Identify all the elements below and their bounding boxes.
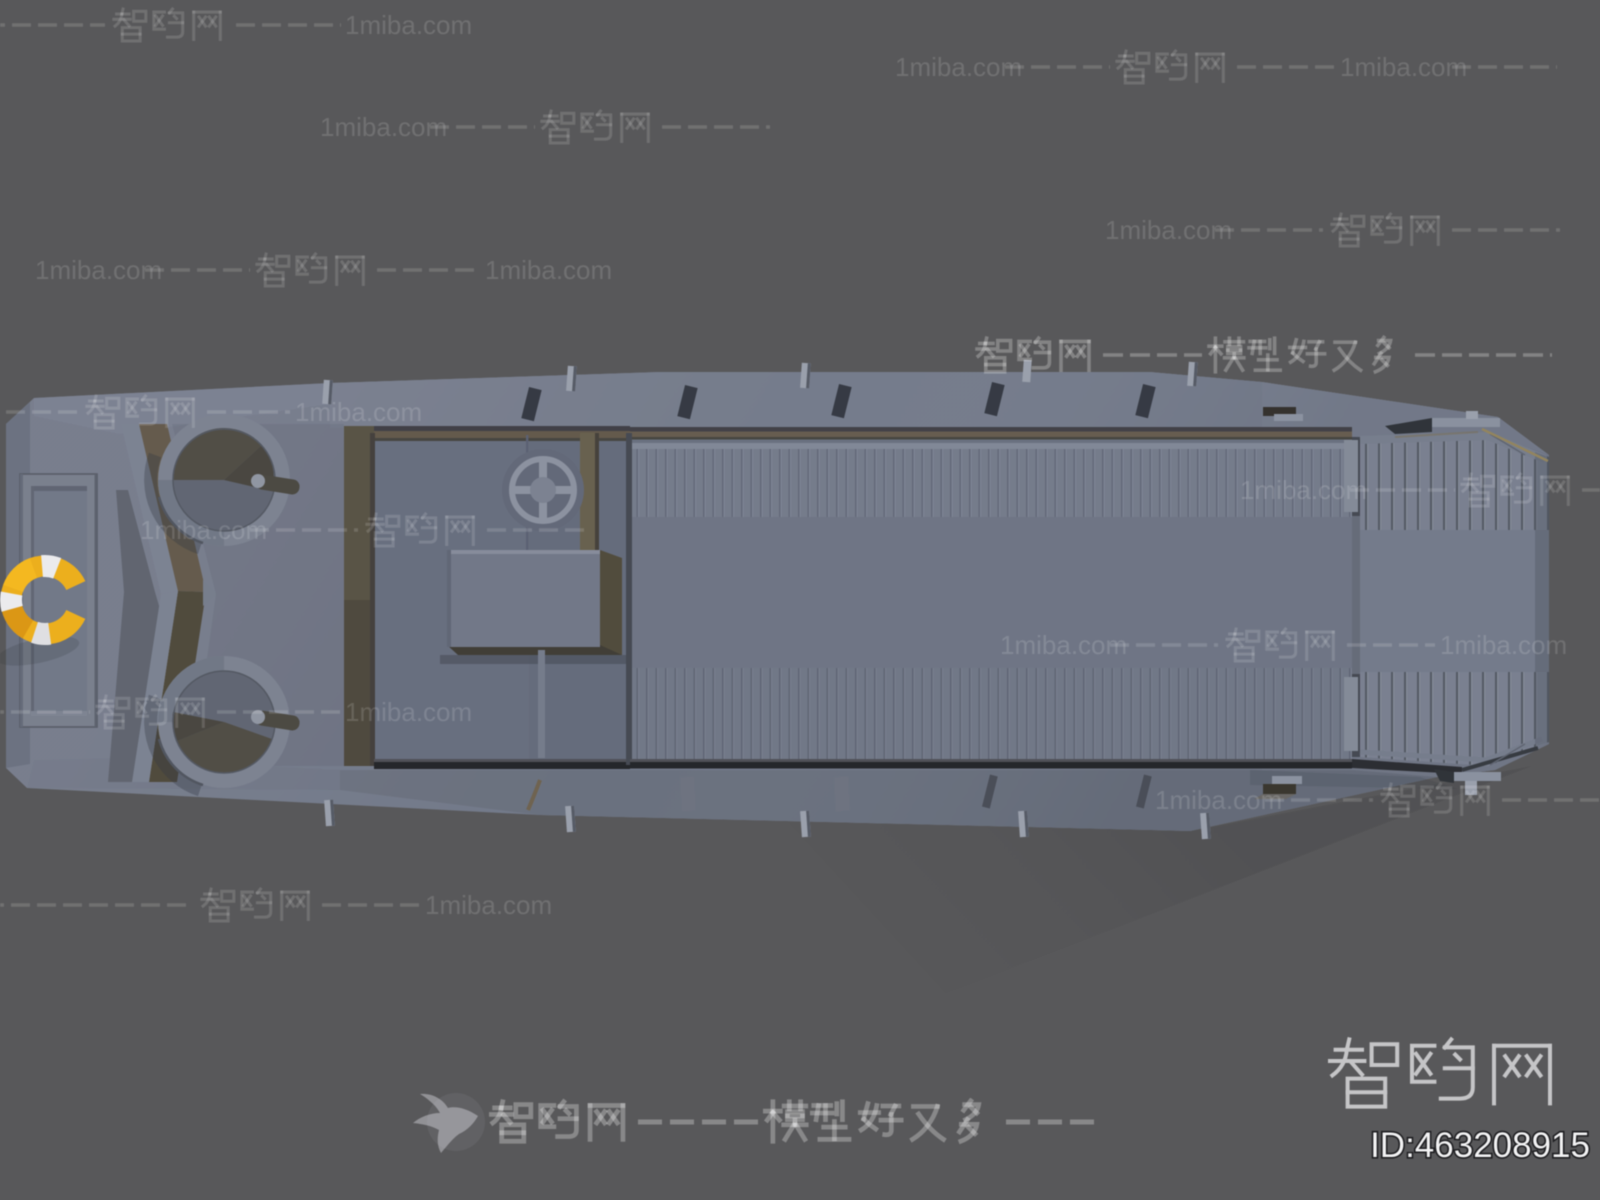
svg-text:1miba.com: 1miba.com (35, 255, 162, 285)
svg-text:1miba.com: 1miba.com (1440, 630, 1567, 660)
svg-text:1miba.com: 1miba.com (345, 10, 472, 40)
svg-text:1miba.com: 1miba.com (1240, 475, 1367, 505)
svg-text:1miba.com: 1miba.com (345, 697, 472, 727)
svg-text:1miba.com: 1miba.com (425, 890, 552, 920)
svg-text:1miba.com: 1miba.com (1105, 215, 1232, 245)
svg-text:1miba.com: 1miba.com (295, 397, 422, 427)
svg-text:1miba.com: 1miba.com (320, 112, 447, 142)
svg-text:1miba.com: 1miba.com (895, 52, 1022, 82)
svg-text:1miba.com: 1miba.com (140, 515, 267, 545)
svg-text:1miba.com: 1miba.com (1340, 52, 1467, 82)
svg-text:1miba.com: 1miba.com (1000, 630, 1127, 660)
svg-text:ID:463208915: ID:463208915 (1370, 1126, 1590, 1165)
svg-text:1miba.com: 1miba.com (1155, 785, 1282, 815)
svg-text:1miba.com: 1miba.com (485, 255, 612, 285)
